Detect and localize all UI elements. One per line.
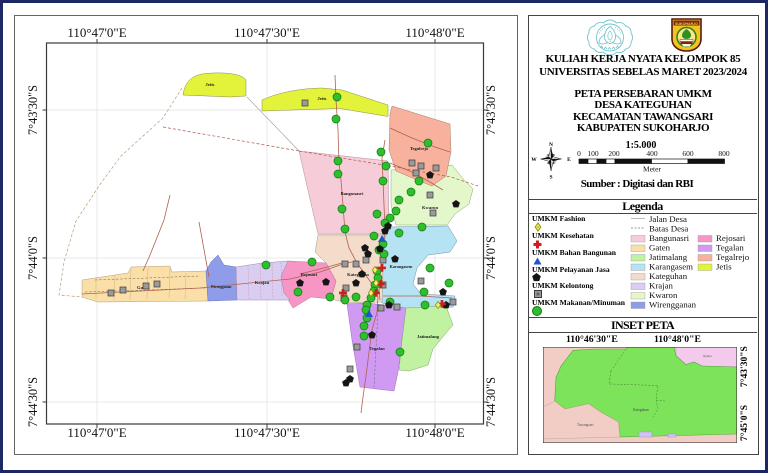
svg-text:100: 100 bbox=[587, 149, 599, 158]
svg-text:7°44'0"S: 7°44'0"S bbox=[484, 236, 498, 280]
svg-text:Wirengganan: Wirengganan bbox=[649, 300, 697, 310]
svg-text:110°48'0"E: 110°48'0"E bbox=[405, 425, 464, 440]
svg-text:Meter: Meter bbox=[643, 165, 661, 174]
svg-text:Kateguhan: Kateguhan bbox=[649, 271, 688, 281]
svg-text:Kwaron: Kwaron bbox=[649, 290, 678, 300]
svg-text:Krajan: Krajan bbox=[649, 281, 674, 291]
svg-text:Karangasem: Karangasem bbox=[649, 262, 693, 272]
svg-text:Bangunasri: Bangunasri bbox=[341, 191, 364, 196]
svg-text:Jatimalang: Jatimalang bbox=[649, 252, 688, 262]
svg-text:W: W bbox=[531, 157, 537, 163]
svg-text:110°48'0"E: 110°48'0"E bbox=[405, 25, 464, 40]
svg-text:Jetis: Jetis bbox=[206, 82, 215, 87]
svg-text:Jetis: Jetis bbox=[318, 96, 327, 101]
svg-text:N: N bbox=[549, 142, 553, 148]
svg-text:7°43'30"S: 7°43'30"S bbox=[484, 85, 498, 135]
svg-text:Tawangsari: Tawangsari bbox=[577, 423, 594, 427]
svg-text:Tegalan: Tegalan bbox=[716, 243, 744, 253]
svg-text:7°43'30"S: 7°43'30"S bbox=[26, 85, 40, 135]
svg-text:Tegalan: Tegalan bbox=[369, 346, 385, 351]
svg-text:7°44'0"S: 7°44'0"S bbox=[26, 236, 40, 280]
svg-text:SUKOHARJO: SUKOHARJO bbox=[675, 22, 698, 26]
svg-text:110°47'0"E: 110°47'0"E bbox=[67, 25, 126, 40]
svg-text:Gaten: Gaten bbox=[649, 243, 671, 253]
svg-text:Nguter: Nguter bbox=[703, 354, 713, 358]
svg-text:Batas Desa: Batas Desa bbox=[649, 224, 688, 234]
svg-text:Rejosari: Rejosari bbox=[716, 233, 746, 243]
svg-text:400: 400 bbox=[646, 149, 658, 158]
svg-text:Wirengganan: Wirengganan bbox=[211, 285, 232, 289]
svg-text:Karangasem: Karangasem bbox=[390, 264, 413, 269]
svg-text:Bangunasri: Bangunasri bbox=[649, 233, 690, 243]
svg-text:Kwaron: Kwaron bbox=[422, 205, 438, 210]
svg-text:600: 600 bbox=[682, 149, 694, 158]
svg-text:Jatimalang: Jatimalang bbox=[417, 334, 440, 339]
svg-text:800: 800 bbox=[718, 149, 730, 158]
svg-text:Jalan Desa: Jalan Desa bbox=[649, 214, 687, 224]
svg-text:Kateguhan: Kateguhan bbox=[633, 408, 649, 412]
svg-text:7°44'30"S: 7°44'30"S bbox=[484, 377, 498, 427]
svg-text:Tegalrejo: Tegalrejo bbox=[716, 252, 750, 262]
svg-text:110°47'30"E: 110°47'30"E bbox=[234, 425, 300, 440]
svg-text:Krajan: Krajan bbox=[255, 280, 270, 285]
svg-text:Jetis: Jetis bbox=[716, 262, 732, 272]
svg-text:0: 0 bbox=[577, 149, 581, 158]
svg-text:200: 200 bbox=[608, 149, 620, 158]
svg-text:110°47'0"E: 110°47'0"E bbox=[67, 425, 126, 440]
svg-text:Rejosari: Rejosari bbox=[301, 272, 318, 277]
svg-text:7°44'30"S: 7°44'30"S bbox=[26, 377, 40, 427]
svg-text:110°47'30"E: 110°47'30"E bbox=[234, 25, 300, 40]
